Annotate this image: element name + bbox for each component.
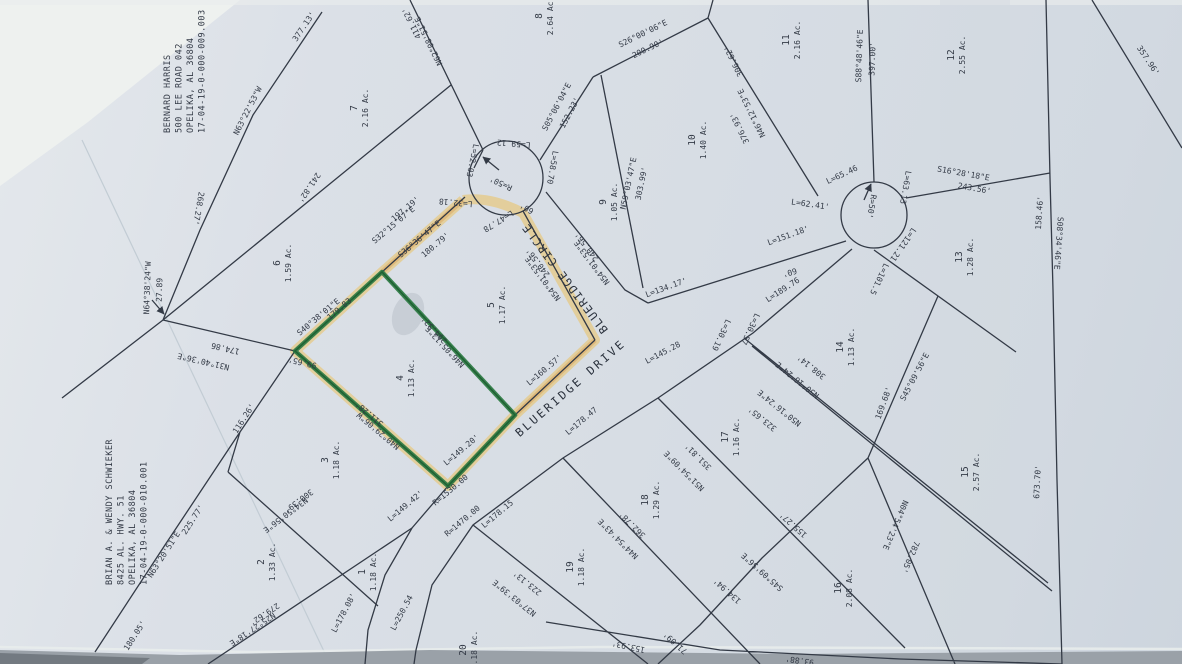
lot-acreage: 1.33 Ac. — [268, 543, 277, 582]
lot-label-8: 82.64 Ac. — [534, 0, 555, 35]
lot-label-3: 31.18 Ac. — [320, 441, 341, 480]
owner-annotation: BRIAN A. & WENDY SCHWIEKER8425 AL. HWY. … — [105, 439, 150, 585]
lot-acreage: 1.16 Ac. — [732, 418, 741, 457]
bearing-label: N62°08'51"E — [413, 15, 444, 67]
bearing-label: L=62.41' — [791, 197, 830, 211]
bearing-label: N64°38'24"W — [142, 261, 153, 314]
lot-acreage: 2.55 Ac. — [958, 36, 967, 75]
bearing-label: 351.81' — [683, 442, 713, 472]
bearing-label: L=58.70 — [545, 150, 560, 185]
lot-acreage: 1.05 Ac. — [610, 183, 619, 222]
bearing-label: L=63.13 — [898, 170, 913, 205]
lot-number: 6 — [272, 260, 283, 266]
lot-acreage: 1.40 Ac. — [699, 121, 708, 160]
bearing-label: S88°48'46"E — [854, 29, 865, 82]
lot-label-9: 91.05 Ac. — [598, 183, 619, 222]
bearing-label: L=178.47 — [564, 405, 599, 437]
owner-line: BRIAN A. & WENDY SCHWIEKER — [105, 439, 115, 585]
lot-label-17: 171.16 Ac. — [720, 418, 741, 457]
bearing-label: 174.86 — [210, 341, 240, 356]
bearing-label: N04°54'23"E — [881, 499, 910, 551]
lot-acreage: 2.16 Ac. — [361, 89, 370, 128]
bearing-label: 303.99' — [634, 166, 650, 201]
bearing-label: L=178.15 — [480, 498, 515, 530]
lot-label-4: 41.13 Ac. — [395, 359, 416, 398]
bearing-label: 268.27' — [191, 191, 206, 226]
lot-number: 19 — [565, 561, 576, 573]
bearing-label: L=101.5 — [868, 262, 890, 297]
lot-label-5: 51.17 Ac. — [486, 286, 507, 325]
bearing-label: S08°34'46"E — [1052, 216, 1065, 270]
lot-number: 17 — [720, 431, 731, 442]
lot-labels: 72.16 Ac.82.64 Ac.112.16 Ac.122.55 Ac.10… — [256, 0, 981, 664]
lot-acreage: 2.08 Ac. — [845, 569, 854, 608]
lot-number: 13 — [954, 251, 965, 262]
bearing-label: 241.82' — [296, 171, 322, 204]
bearing-label: L=134.17' — [644, 276, 688, 299]
bearing-label: 169.68' — [874, 386, 894, 421]
bearing-label: N31°40'36"E — [176, 351, 230, 372]
lot-label-16: 162.08 Ac. — [833, 569, 854, 608]
radius-arrow — [483, 157, 499, 170]
lot-acreage: 1.13 Ac. — [847, 328, 856, 367]
lot-label-7: 72.16 Ac. — [349, 89, 370, 128]
bearing-label: 225.77' — [180, 503, 206, 536]
lot-number: 16 — [833, 582, 844, 594]
street-name: BLUERIDGE CIRCLE — [519, 220, 611, 336]
bearing-label: L=52.03 — [465, 143, 481, 178]
bearing-label: 782.05' — [900, 540, 921, 575]
lot-label-6: 61.59 Ac. — [272, 244, 293, 283]
lot-number: 15 — [960, 466, 971, 477]
bearing-label: 223.13' — [511, 569, 543, 597]
lot-acreage: 1.29 Ac. — [652, 481, 661, 520]
bearing-label: L=250.54 — [389, 594, 415, 632]
bearing-label: 116.26' — [231, 402, 257, 435]
bearing-label: L=189.76 — [764, 276, 801, 305]
lot-acreage: 1.28 Ac. — [966, 238, 975, 277]
lot-number: 12 — [946, 49, 957, 60]
owner-line: 17-04-19-0-000-010.001 — [140, 461, 150, 585]
lot-label-11: 112.16 Ac. — [781, 21, 802, 60]
bearing-label: 71.09' — [662, 630, 690, 656]
lot-acreage: 2.64 Ac. — [546, 0, 555, 35]
owner-line: 8425 AL. HWY. 51 — [117, 495, 127, 585]
lot-number: 10 — [687, 134, 698, 146]
lot-label-18: 181.29 Ac. — [640, 481, 661, 520]
lot-number: 20 — [458, 644, 469, 656]
bearing-label: 397.00' — [867, 42, 877, 76]
bearing-label: R=1470.00 — [443, 504, 482, 539]
lot-acreage: 1.13 Ac. — [407, 359, 416, 398]
lot-acreage: 1.18 Ac. — [577, 548, 586, 587]
lot-acreage: 1.59 Ac. — [284, 244, 293, 283]
bearing-label: 357.96' — [1135, 44, 1161, 77]
bearing-label: 306.62' — [722, 44, 745, 78]
lot-number: 11 — [781, 34, 792, 46]
bearing-label: 673.70' — [1032, 465, 1043, 499]
bearing-label: 158.46' — [1034, 196, 1045, 230]
plat-map-drawing: 377.13'N63°22'53"W268.27'N64°38'24"W27.8… — [0, 0, 1182, 664]
bearing-label: N63°20'51"E — [146, 530, 183, 579]
lot-acreage: 1.18 Ac. — [332, 441, 341, 480]
bearing-label: L=151.18' — [766, 224, 810, 247]
bearing-label: L=178.08' — [330, 592, 358, 635]
lot-label-2: 21.33 Ac. — [256, 543, 277, 582]
owner-line: BERNARD HARRIS — [163, 54, 173, 133]
lot-acreage: 1.18 Ac. — [369, 553, 378, 592]
bearing-label: L=149.42' — [386, 489, 425, 524]
lot-number: 14 — [835, 341, 846, 353]
owner-line: 500 LEE ROAD 042 — [175, 43, 185, 133]
bearing-label: 180.05' — [122, 619, 148, 652]
lot-label-10: 101.40 Ac. — [687, 121, 708, 160]
lot-acreage: 2.57 Ac. — [972, 453, 981, 492]
lot-number: 1 — [357, 569, 368, 575]
lot-boundary-lines — [62, 0, 1182, 664]
bearing-label: 153.93' — [611, 639, 646, 655]
bearing-label: S32°15'07"E — [370, 204, 417, 245]
bearing-label: 134.94' — [712, 576, 743, 605]
bearing-label: L=47.78 — [481, 208, 515, 234]
bearing-label: L=65.46 — [825, 163, 860, 185]
lot-number: 3 — [320, 457, 331, 463]
owner-line: OPELIKA, AL 36804 — [128, 490, 138, 586]
owner-line: OPELIKA, AL 36804 — [186, 38, 196, 134]
bearing-label: R=50' — [865, 194, 878, 219]
bearing-label: L=30.19 — [710, 318, 732, 353]
boundary-lines — [62, 0, 1182, 664]
bearing-label: R=50' — [488, 174, 514, 192]
lot-label-14: 141.13 Ac. — [835, 328, 856, 367]
lot-number: 18 — [640, 494, 651, 506]
bearing-label: L=59.12 — [496, 138, 531, 150]
bearing-label: L=145.28 — [644, 340, 682, 366]
lot-number: 7 — [349, 105, 360, 111]
lot-number: 9 — [598, 199, 609, 205]
bearing-label: 27.89 — [155, 278, 165, 303]
lot-label-1: 11.18 Ac. — [357, 553, 378, 592]
bearing-label: N63°22'53"W — [232, 85, 264, 136]
lot-acreage: 2.16 Ac. — [793, 21, 802, 60]
owner-line: 17-04-19-0-000-009.003 — [198, 9, 208, 133]
scan-band-right — [940, 0, 1010, 664]
lot-number: 4 — [395, 375, 406, 381]
bearing-label: 362.78' — [617, 510, 647, 540]
lot-acreage: 1.17 Ac. — [498, 286, 507, 325]
lot-number: 2 — [256, 559, 267, 565]
lot-label-19: 191.18 Ac. — [565, 548, 586, 587]
lot-number: 5 — [486, 302, 497, 308]
bearing-label: N59°03'47"E — [619, 156, 639, 210]
lot-number: 8 — [534, 13, 545, 19]
lot-acreage: 1.18 Ac. — [470, 631, 479, 664]
plat-map-scan: 377.13'N63°22'53"W268.27'N64°38'24"W27.8… — [0, 0, 1182, 664]
